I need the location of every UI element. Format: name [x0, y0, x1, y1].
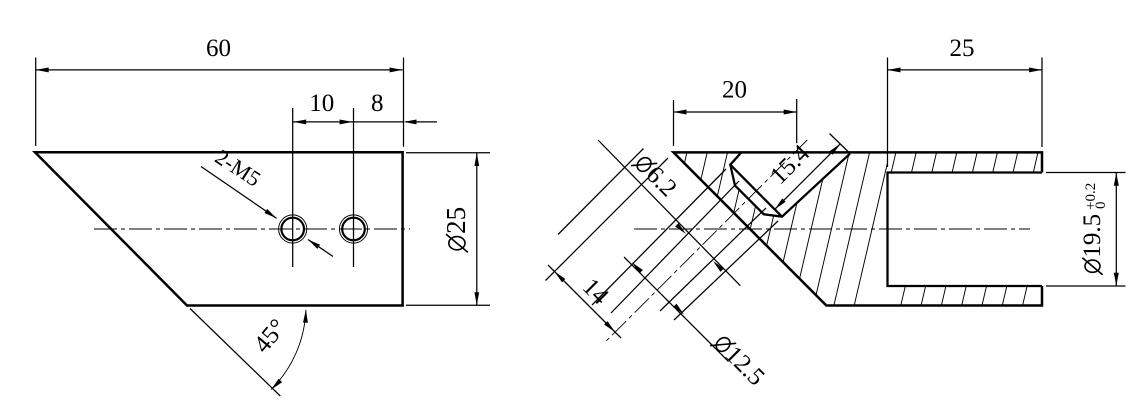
svg-text:25: 25 — [950, 35, 975, 62]
svg-text:0: 0 — [1093, 202, 1109, 210]
svg-text:60: 60 — [206, 35, 231, 62]
svg-text:10: 10 — [309, 90, 334, 117]
svg-text:8: 8 — [371, 90, 384, 117]
svg-text:19.5: 19.5 — [1079, 214, 1106, 258]
svg-text:20: 20 — [722, 77, 747, 104]
svg-text:25: 25 — [441, 207, 471, 234]
